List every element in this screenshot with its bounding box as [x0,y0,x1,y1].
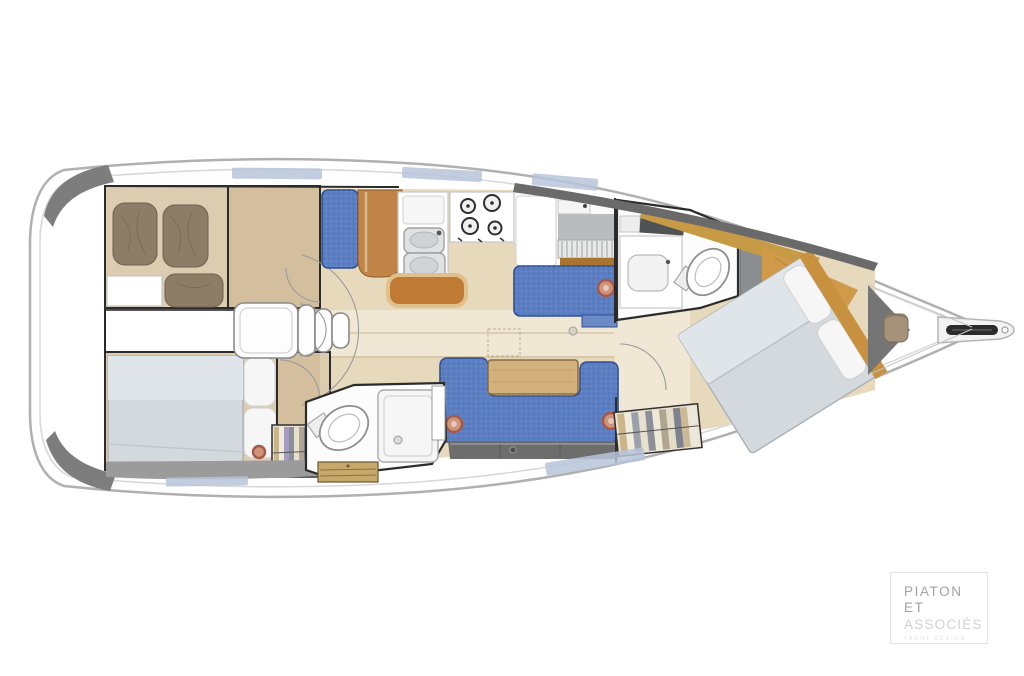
aft-cabin-starboard [105,352,330,479]
engine-compartment [105,310,235,352]
dish-rack [558,240,616,258]
deck-window [166,476,248,486]
step-1 [298,305,315,356]
round-cushion-center [603,285,609,291]
worktop-gray [558,214,616,240]
pillow [113,203,157,265]
head-door [432,386,445,440]
designer-logo: PIATON ET ASSOCIÉS YACHT DESIGN [890,572,988,644]
deck-window [232,168,322,180]
top-interior-wall [105,186,398,187]
salon-table [488,360,578,394]
vanity-drawers [318,462,378,482]
step-2 [315,309,332,352]
mast-post [569,327,577,335]
double-sink [404,228,445,279]
fridge-lid [403,196,444,224]
settee-foot [582,315,617,327]
yacht-floor-plan: PIATON ET ASSOCIÉS YACHT DESIGN [0,0,1024,676]
aft-cabin-port [105,186,320,308]
berth-step [107,276,162,306]
logo-line1: PIATON [904,584,987,600]
logo-line3: ASSOCIÉS [904,617,987,633]
berth-sheet [108,356,243,400]
round-cushion-center [451,421,457,427]
nav-seat-texture [322,190,358,268]
floor-plan-drawing [0,0,1024,676]
pillow [244,358,275,406]
hull-side-band [106,460,320,479]
logo-tagline: YACHT DESIGN [904,636,987,643]
logo-line2: ET [904,600,987,616]
faucet [666,260,670,264]
faucet [583,204,587,208]
faucet [437,231,442,236]
shower-tray [378,390,438,462]
companionway-platform [234,303,298,358]
cabinet-door [516,196,556,266]
step-3 [332,313,349,348]
galley-island-bar [390,277,464,304]
locker-handle [510,447,516,453]
chart-bench [358,190,402,277]
pillow [163,205,208,267]
wardrobe-forward [614,404,702,457]
head-sink-unit [620,236,682,308]
porthole-red [253,446,265,458]
bow-fitting [1002,327,1008,333]
aft-port-dressing-area [228,186,320,308]
shelf [620,216,640,232]
stove [450,192,514,242]
pillow [165,274,223,307]
round-cushion-center [608,418,614,424]
shower-drain [394,436,402,444]
bow-sack [884,314,908,342]
